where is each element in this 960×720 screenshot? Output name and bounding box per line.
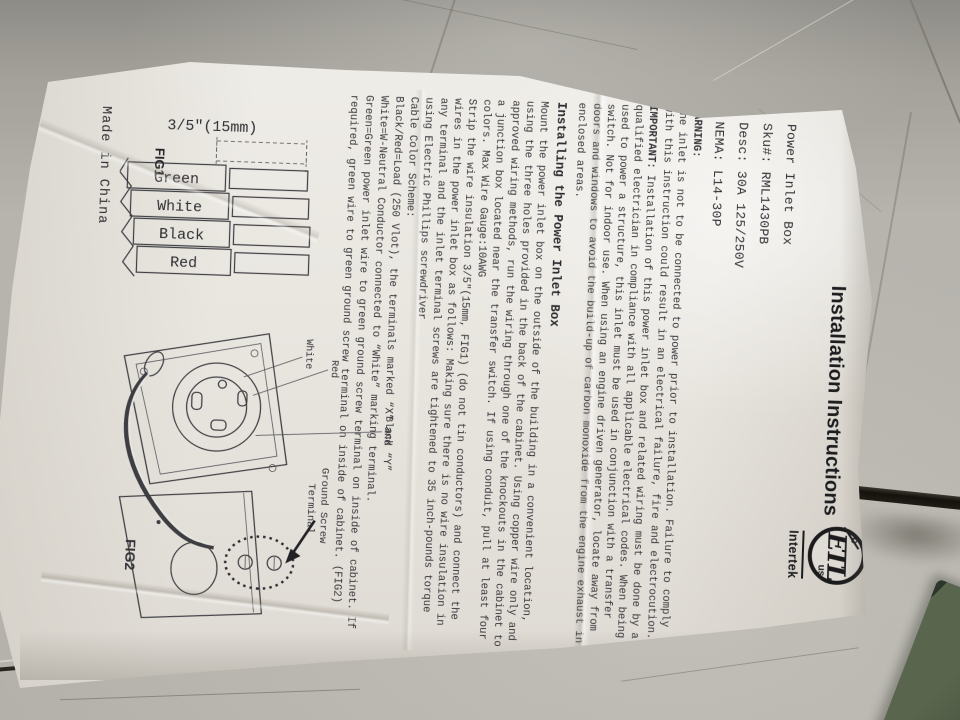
intertek-label: Intertek bbox=[785, 530, 805, 579]
made-in-china-label: Made in China bbox=[94, 106, 113, 225]
fig1-inner: 3/5"(15mm) Green White Black bbox=[115, 112, 322, 331]
fig2-box-diagram: Black Red White bbox=[102, 310, 418, 632]
fig2-label-red: Red bbox=[328, 360, 341, 378]
fig1-caption: FIG1 bbox=[152, 148, 168, 177]
fig2-label-black: Black bbox=[381, 416, 394, 446]
fig1-wire-label-white: White bbox=[157, 198, 203, 217]
product-info: Power Inlet Box Sku#: RML1430PB Desc: 30… bbox=[702, 121, 803, 270]
table-corner-scratch bbox=[907, 0, 960, 123]
fig1-dimension-label: 3/5"(15mm) bbox=[168, 117, 259, 137]
etl-circle: c ETL us bbox=[807, 526, 867, 586]
fig1-drawing: 3/5"(15mm) Green White Black bbox=[115, 112, 322, 331]
green-object bbox=[877, 579, 960, 720]
etl-logo: c ETL us Intertek bbox=[782, 506, 867, 605]
instruction-sheet: Power Inlet Box Sku#: RML1430PB Desc: 30… bbox=[0, 0, 960, 720]
fig2-knockout-hole bbox=[170, 542, 218, 596]
table-scratch bbox=[621, 647, 859, 681]
fig2-label-white: White bbox=[302, 339, 315, 369]
fig2-arrowhead bbox=[285, 549, 301, 565]
etl-c-mark: c bbox=[848, 537, 860, 544]
product-desc: Desc: 30A 125/250V bbox=[726, 122, 755, 269]
important-text: Installation of this power inlet box and… bbox=[571, 102, 656, 643]
fig2-receptacle-inner bbox=[186, 376, 248, 438]
etl-us-mark: us bbox=[815, 564, 826, 576]
product-name: Power Inlet Box bbox=[774, 124, 803, 271]
table-scratch bbox=[383, 0, 638, 50]
ground-screw-terminal-label-line1: Ground Screw bbox=[316, 468, 331, 545]
photo-scene: Power Inlet Box Sku#: RML1430PB Desc: 30… bbox=[0, 0, 960, 720]
page-title: Installation Instructions bbox=[818, 285, 849, 516]
product-sku: Sku#: RML1430PB bbox=[750, 123, 779, 270]
table-groove-right bbox=[856, 486, 960, 511]
important-label: IMPORTANT: bbox=[645, 105, 659, 169]
table-scratch bbox=[713, 0, 887, 81]
fig1-wire-label-black: Black bbox=[159, 226, 205, 245]
table-groove-smudge bbox=[854, 510, 960, 570]
fig1-wire-diagram: 3/5"(15mm) Green White Black bbox=[112, 112, 324, 329]
page-content: Power Inlet Box Sku#: RML1430PB Desc: 30… bbox=[34, 40, 885, 674]
table-scratch bbox=[60, 689, 360, 700]
fig2-caption: FIG2 bbox=[122, 539, 139, 571]
fig1-wire-label-red: Red bbox=[170, 254, 198, 272]
